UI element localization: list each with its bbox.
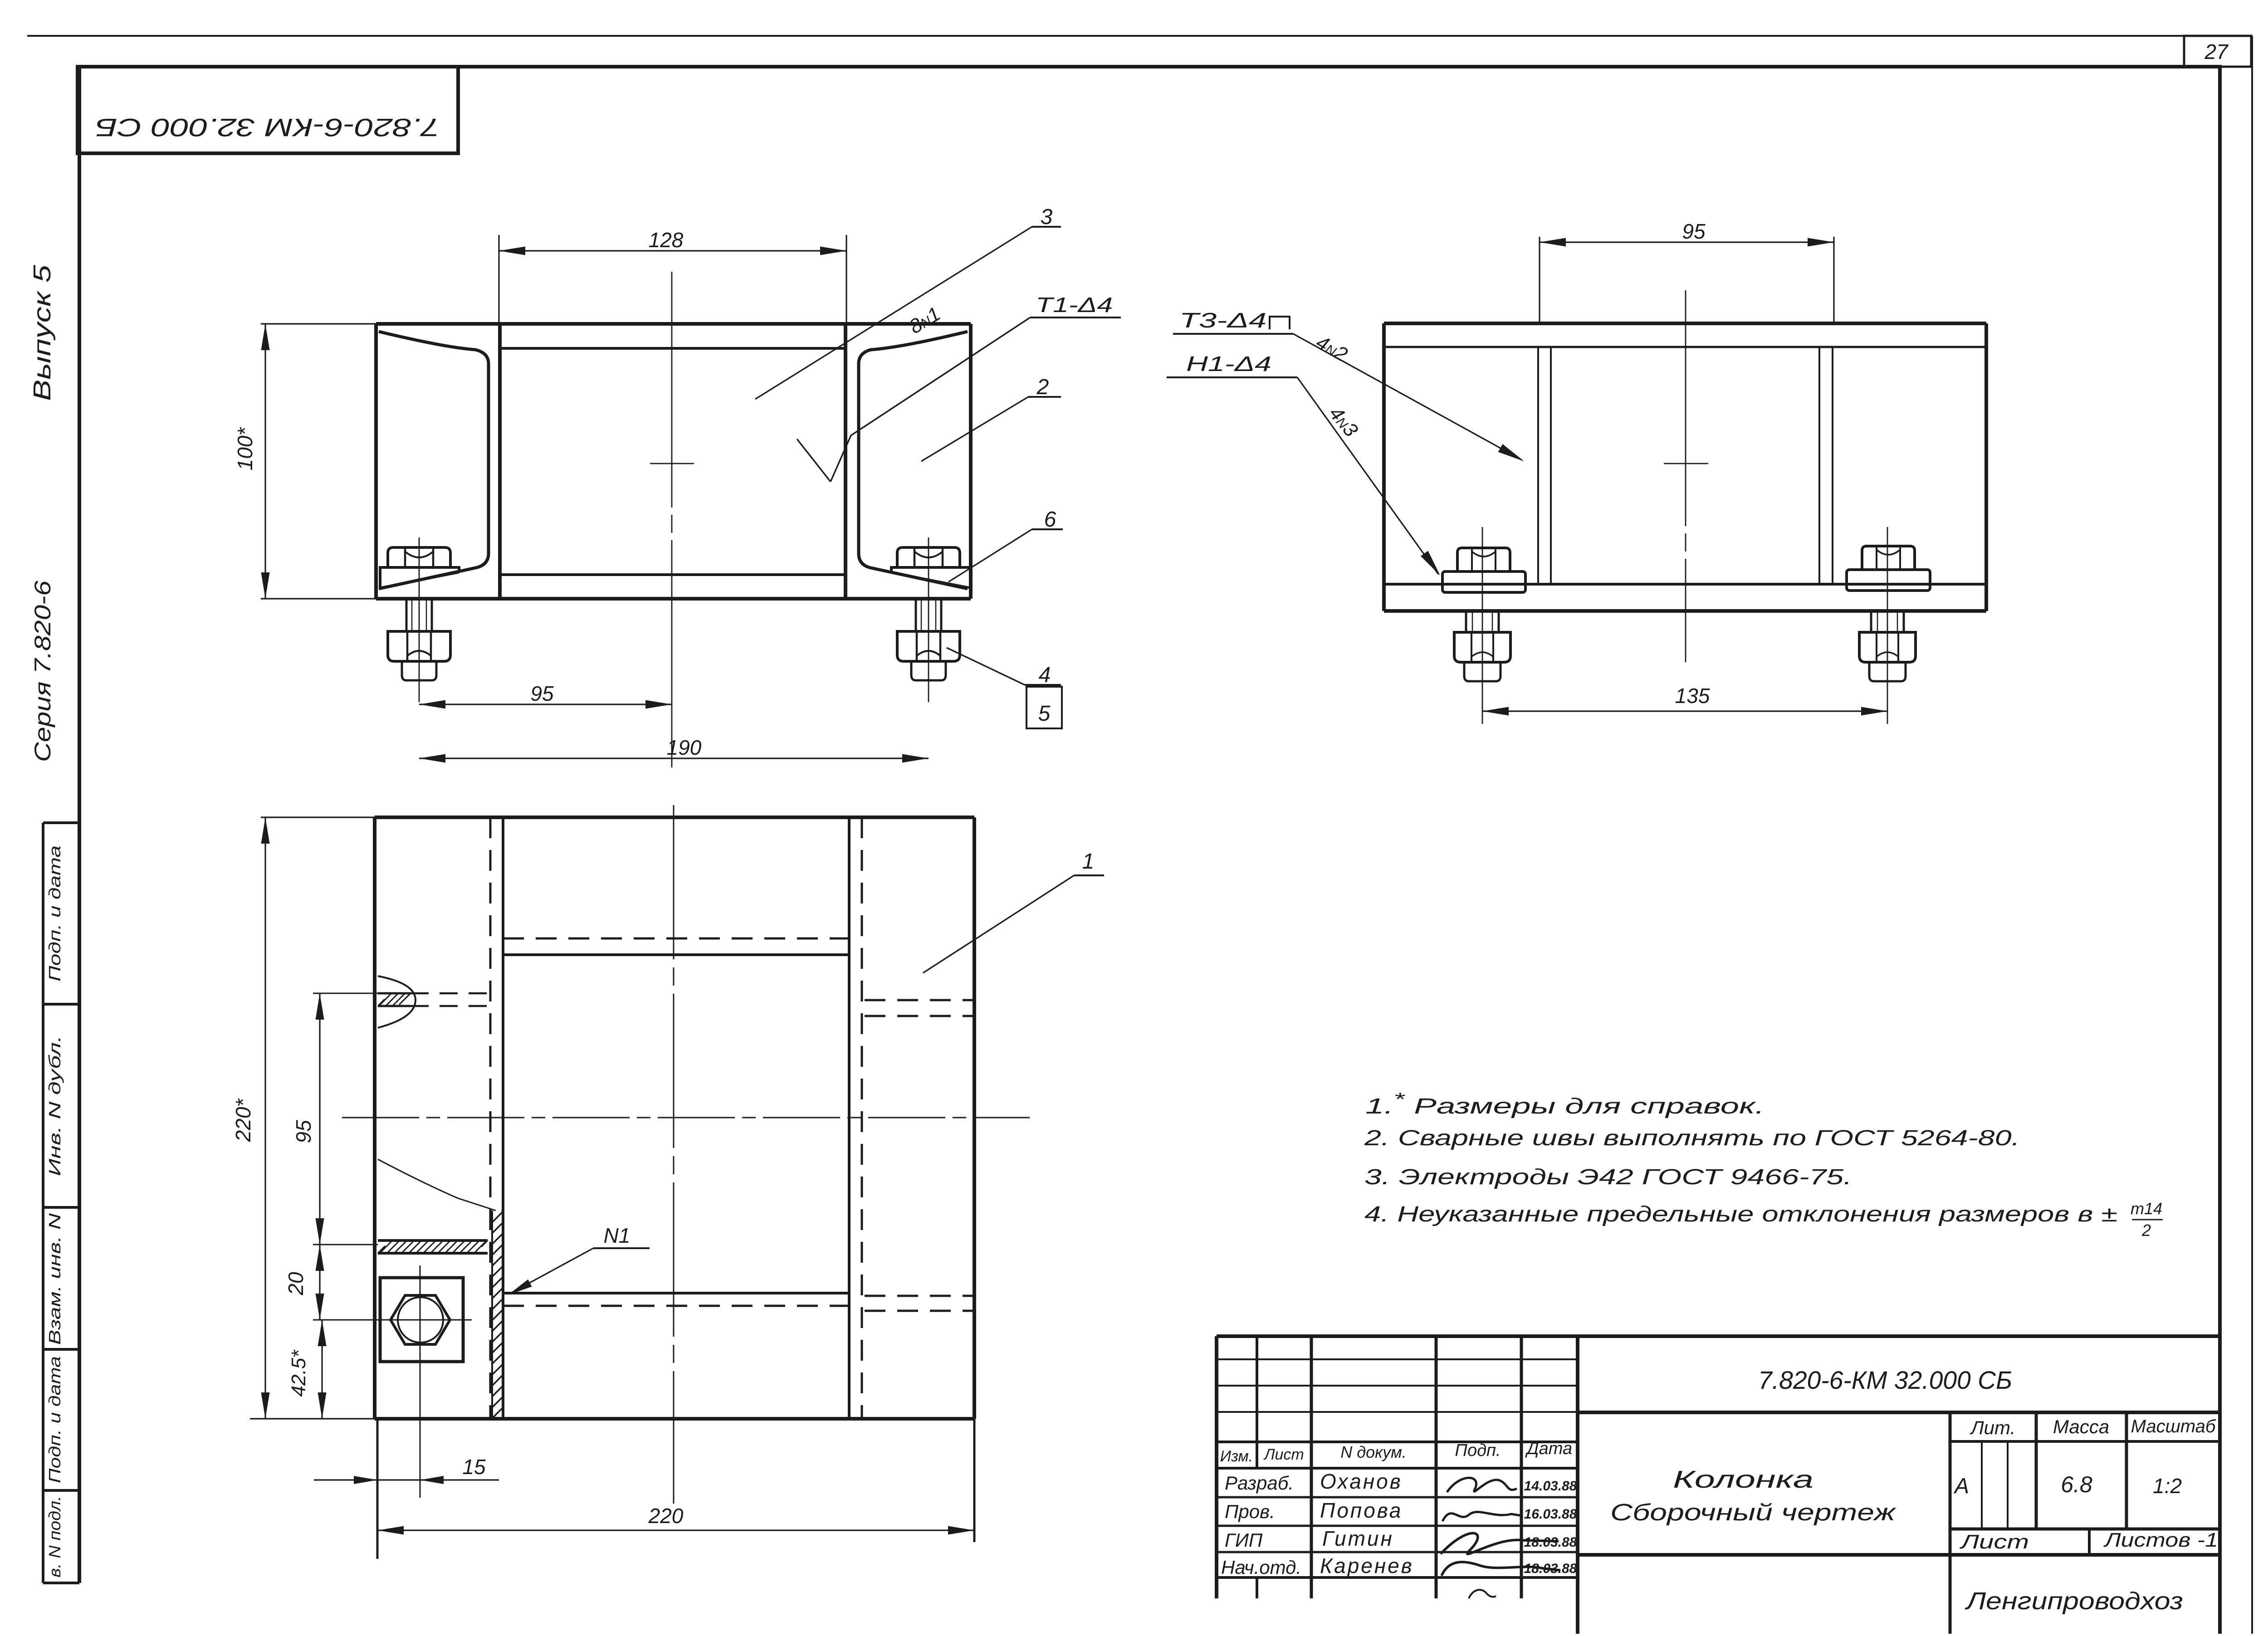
- svg-text:2: 2: [2141, 1221, 2151, 1240]
- svg-text:ГИП: ГИП: [1225, 1529, 1263, 1551]
- svg-text:Ленгипроводхоз: Ленгипроводхоз: [1965, 1587, 2183, 1615]
- svg-text:т14: т14: [2131, 1199, 2162, 1218]
- svg-text:4: 4: [1039, 663, 1051, 687]
- svg-text:Т1-Δ4: Т1-Δ4: [1036, 293, 1113, 317]
- svg-text:А: А: [1953, 1474, 1969, 1498]
- svg-text:Дата: Дата: [1525, 1439, 1572, 1458]
- svg-text:Колонка: Колонка: [1673, 1466, 1813, 1493]
- svg-text:6.8: 6.8: [2061, 1472, 2092, 1497]
- svg-text:Лист: Лист: [1263, 1446, 1304, 1463]
- svg-text:Взам. инв. N: Взам. инв. N: [45, 1213, 64, 1345]
- svg-text:18.03.88: 18.03.88: [1524, 1535, 1577, 1550]
- svg-text:27: 27: [2204, 40, 2229, 63]
- svg-text:1: 1: [1082, 850, 1095, 874]
- svg-text:1:2: 1:2: [2153, 1474, 2182, 1498]
- svg-text:42.5*: 42.5*: [288, 1349, 310, 1397]
- svg-text:Подп. и дата: Подп. и дата: [45, 1356, 64, 1483]
- svg-text:N1: N1: [604, 1224, 631, 1247]
- svg-text:N докум.: N докум.: [1340, 1443, 1407, 1461]
- svg-text:100*: 100*: [233, 427, 257, 471]
- svg-text:Сборочный чертеж: Сборочный чертеж: [1610, 1499, 1897, 1526]
- svg-text:7.820-6-КМ 32.000 СБ: 7.820-6-КМ 32.000 СБ: [1758, 1366, 2012, 1394]
- svg-text:Пров.: Пров.: [1225, 1501, 1275, 1522]
- svg-text:Масштаб: Масштаб: [2131, 1416, 2216, 1436]
- svg-text:15: 15: [462, 1455, 486, 1479]
- svg-text:220: 220: [648, 1504, 684, 1528]
- svg-text:135: 135: [1675, 684, 1710, 708]
- svg-text:в. N подл.: в. N подл.: [45, 1496, 64, 1577]
- svg-text:4. Неуказанные предельные о: 4. Неуказанные предельные отклонения раз…: [1364, 1202, 2117, 1226]
- svg-text:Нач.отд.: Нач.отд.: [1221, 1557, 1301, 1578]
- svg-text:95: 95: [530, 682, 554, 705]
- svg-text:Подп. и дата: Подп. и дата: [45, 845, 64, 982]
- svg-text:Гитин: Гитин: [1322, 1527, 1394, 1550]
- svg-text:Т3-Δ4: Т3-Δ4: [1179, 308, 1266, 332]
- svg-text:Лист: Лист: [1959, 1531, 2029, 1553]
- svg-text:3. Электроды Э42 ГОСТ 9466-7: 3. Электроды Э42 ГОСТ 9466-75.: [1364, 1165, 1852, 1189]
- svg-text:3: 3: [1041, 205, 1053, 229]
- svg-text:7.820-6-КМ 32.000 СБ: 7.820-6-КМ 32.000 СБ: [95, 113, 440, 142]
- svg-text:20: 20: [284, 1272, 308, 1296]
- svg-text:190: 190: [667, 736, 702, 759]
- svg-text:16.03.88: 16.03.88: [1524, 1507, 1577, 1522]
- svg-text:5: 5: [1038, 702, 1051, 726]
- svg-text:2: 2: [1036, 375, 1049, 399]
- svg-text:95: 95: [1682, 220, 1706, 243]
- svg-text:95: 95: [292, 1120, 315, 1143]
- svg-text:Инв. N дубл.: Инв. N дубл.: [45, 1035, 64, 1176]
- svg-text:Выпуск 5: Выпуск 5: [29, 264, 56, 401]
- svg-text:Листов -1: Листов -1: [2103, 1529, 2218, 1551]
- svg-text:Попова: Попова: [1320, 1499, 1403, 1522]
- svg-text:128: 128: [649, 228, 684, 252]
- svg-text:Масса: Масса: [2053, 1416, 2109, 1437]
- svg-text:Лит.: Лит.: [1970, 1417, 2015, 1438]
- svg-text:220*: 220*: [231, 1098, 255, 1143]
- svg-text:Изм.: Изм.: [1220, 1448, 1253, 1465]
- svg-text:6: 6: [1044, 508, 1056, 532]
- svg-text:Подп.: Подп.: [1455, 1441, 1501, 1460]
- svg-text:Разраб.: Разраб.: [1225, 1472, 1294, 1494]
- svg-text:14.03.88: 14.03.88: [1524, 1479, 1577, 1494]
- svg-text:Каренев: Каренев: [1320, 1554, 1414, 1577]
- svg-text:Оханов: Оханов: [1320, 1470, 1403, 1493]
- svg-text:Н1-Δ4: Н1-Δ4: [1186, 352, 1271, 376]
- svg-text:2. Сварные швы выполнять по Г: 2. Сварные швы выполнять по ГОСТ 5264-80…: [1364, 1126, 2020, 1150]
- svg-text:Серия 7.820-6: Серия 7.820-6: [30, 581, 55, 762]
